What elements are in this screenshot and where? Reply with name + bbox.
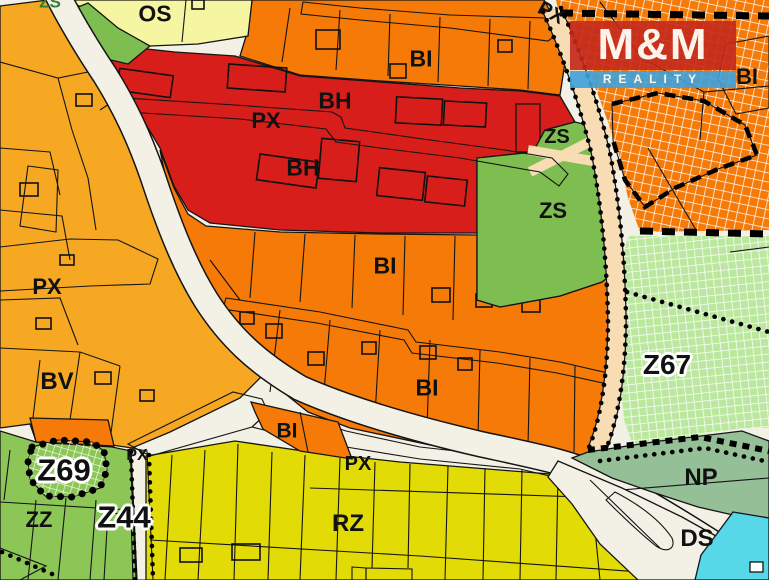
zone-label-bv-12: BV (40, 370, 73, 394)
zone-label-rz-21: RZ (332, 512, 364, 536)
zone-label-z69-17: Z69 (37, 455, 90, 486)
zone-label-z67-14: Z67 (643, 351, 691, 379)
zone-label-zz-19: ZZ (26, 509, 53, 531)
zone-label-np-22: NP (684, 466, 717, 490)
zone-label-bh-8: BH (286, 157, 319, 180)
zone-label-px-11: PX (32, 276, 61, 298)
zone-label-bi-15: BI (277, 421, 298, 442)
zone-label-bi-3: BI (736, 66, 758, 88)
zone-label-ds-23: DS (680, 527, 713, 551)
zone-label-px-16: PX (345, 454, 372, 474)
zone-label-px-6: PX (251, 110, 280, 132)
watermark-logo-subtitle: REALITY (570, 71, 736, 88)
zone-label-bi-13: BI (416, 377, 439, 400)
zone-label-zs-0: ZS (39, 0, 61, 11)
zone-label-bh-5: BH (318, 90, 351, 113)
zone-label-bi-4: BI (410, 48, 433, 71)
zone-label-px-18: PX (126, 448, 147, 464)
watermark-logo-name: M&M (570, 21, 736, 70)
watermark-logo: M&M REALITY (570, 21, 736, 88)
zone-label-zs-9: ZS (539, 200, 567, 222)
zone-label-bi-10: BI (374, 255, 397, 278)
water-feature-icon (750, 562, 763, 572)
zone-label-z44-20: Z44 (97, 502, 150, 533)
zone-z67 (618, 236, 769, 448)
zone-label-zs-7: ZS (544, 127, 570, 147)
zone-label-os-1: OS (138, 3, 171, 26)
zoning-map[interactable]: ZSOSPXBIBIBHPXZSBHZSBIPXBVBIZ67BIPXZ69PX… (0, 0, 769, 580)
